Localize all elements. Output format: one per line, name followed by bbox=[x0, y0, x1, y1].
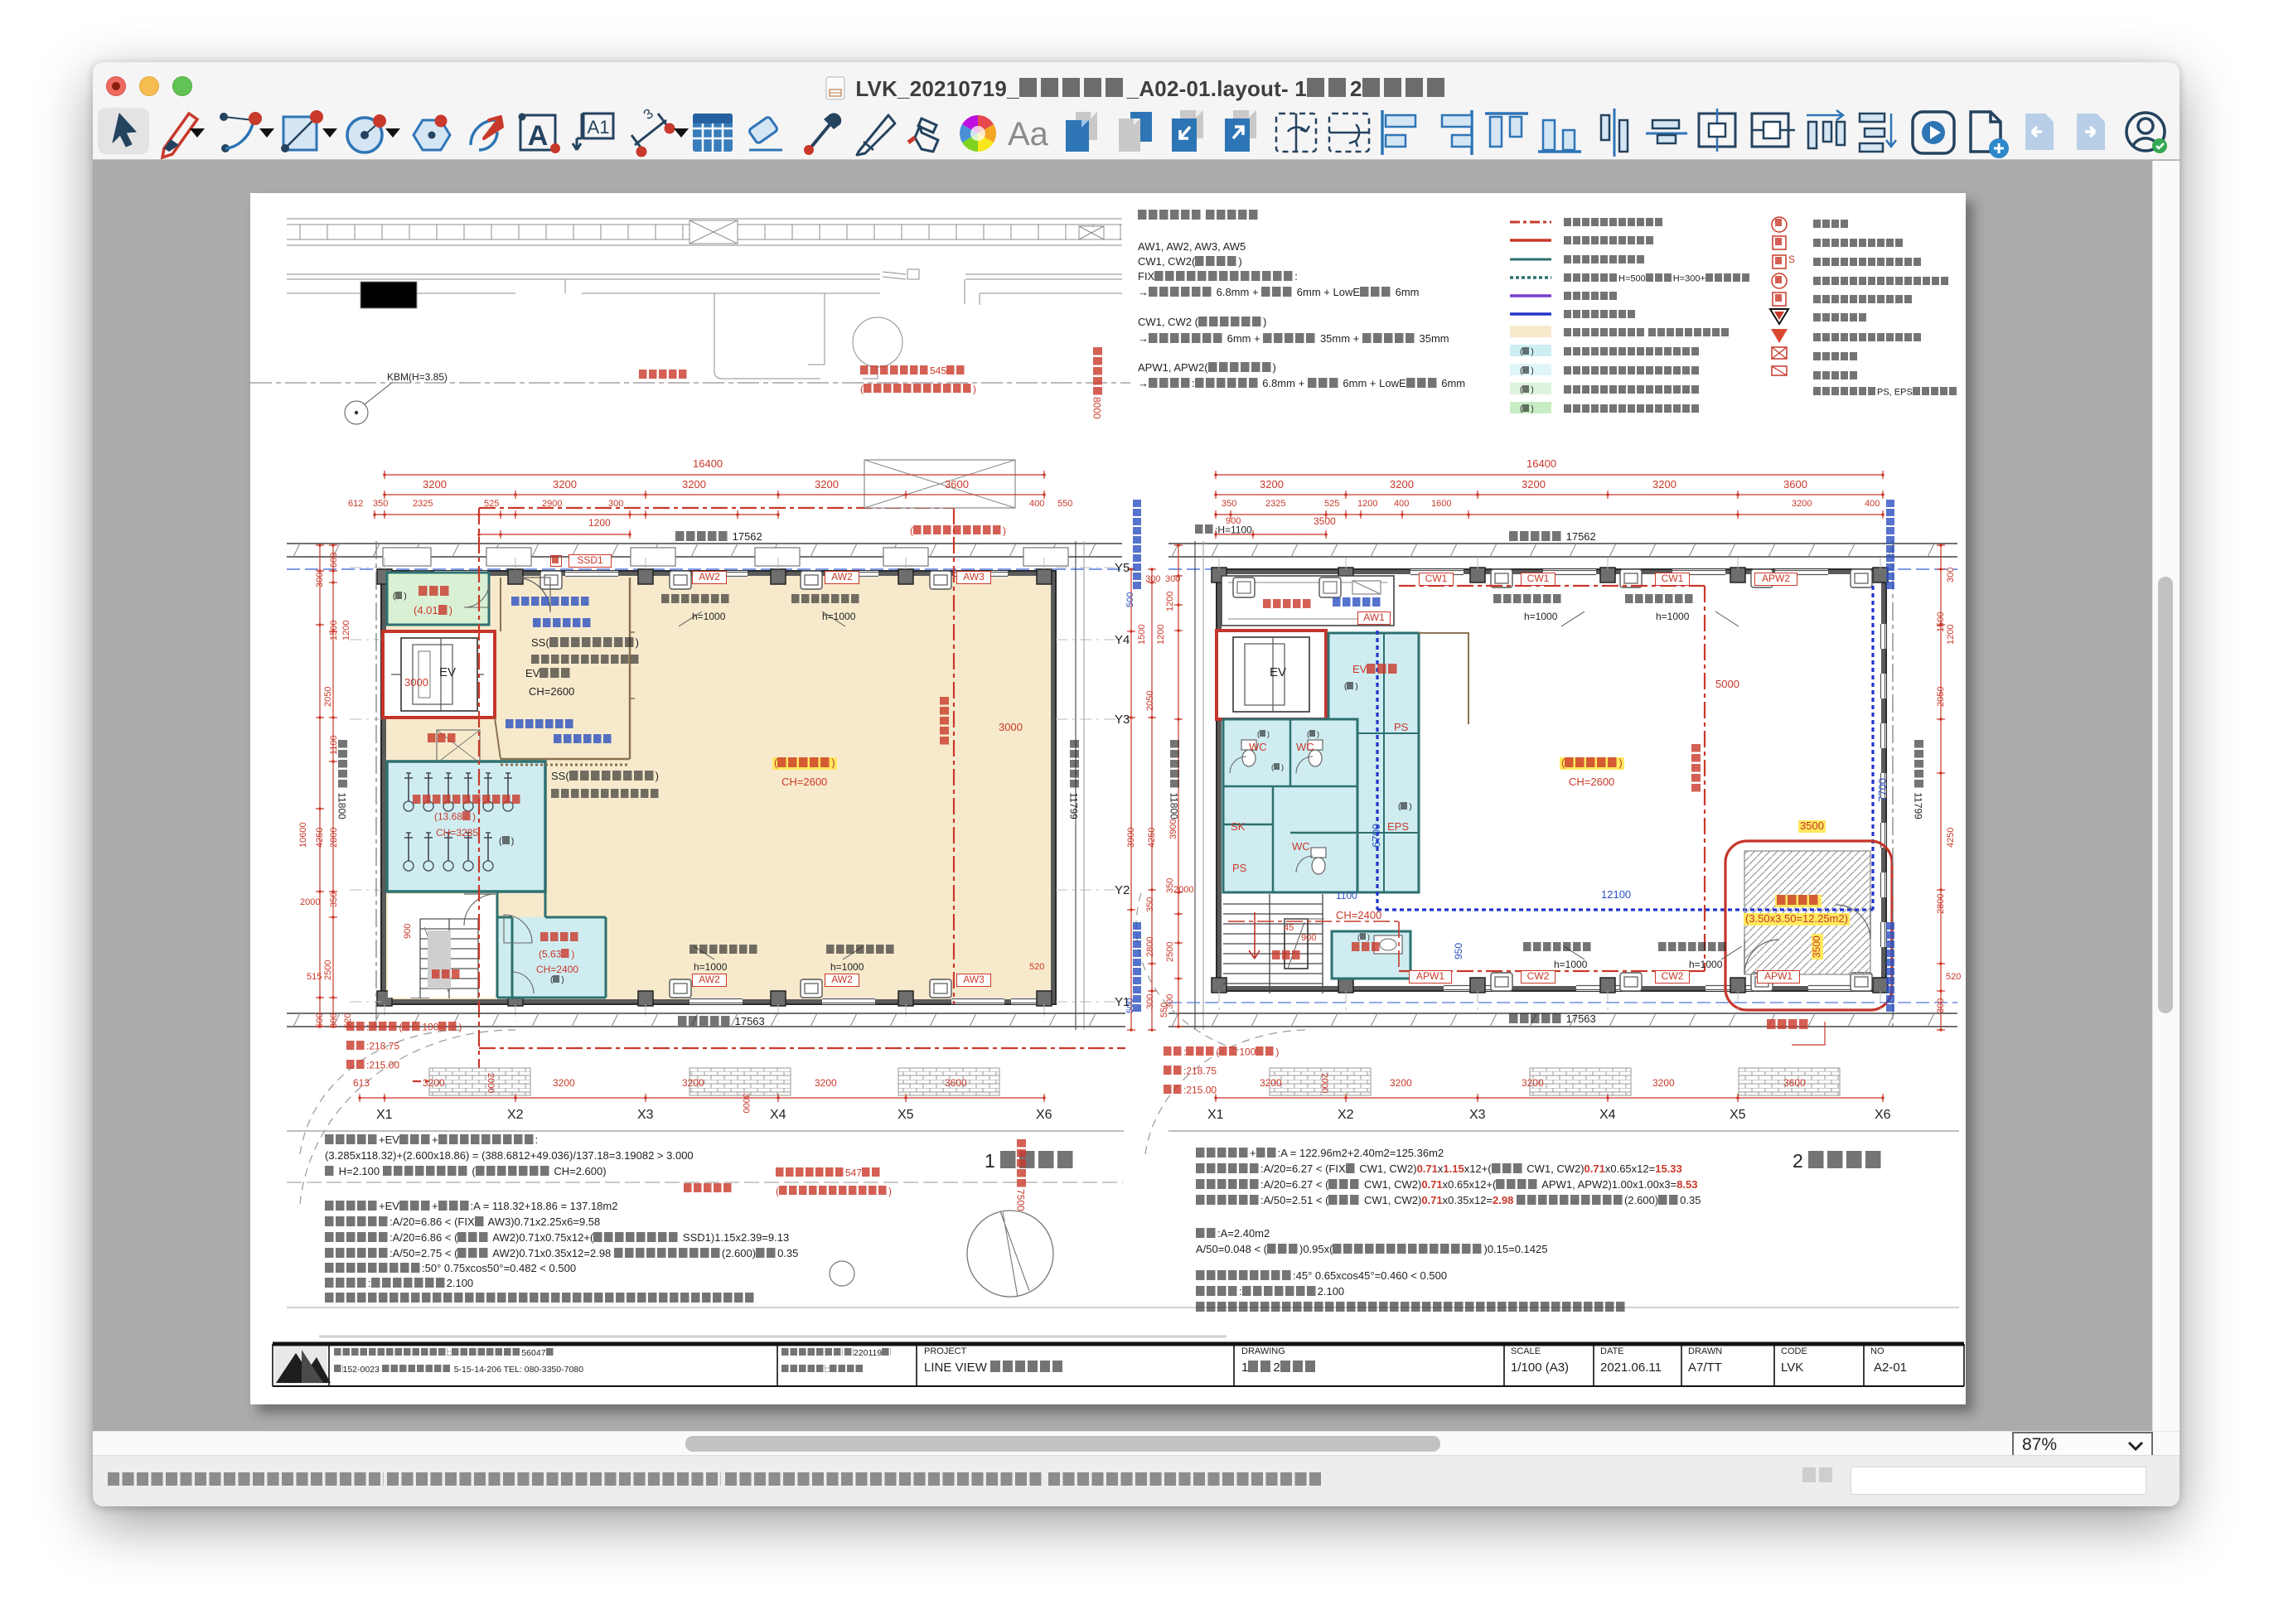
svg-text:3: 3 bbox=[641, 105, 656, 123]
svg-text:A1: A1 bbox=[588, 117, 610, 138]
svg-text:A: A bbox=[528, 120, 549, 152]
svg-text:Aa: Aa bbox=[1008, 116, 1049, 152]
